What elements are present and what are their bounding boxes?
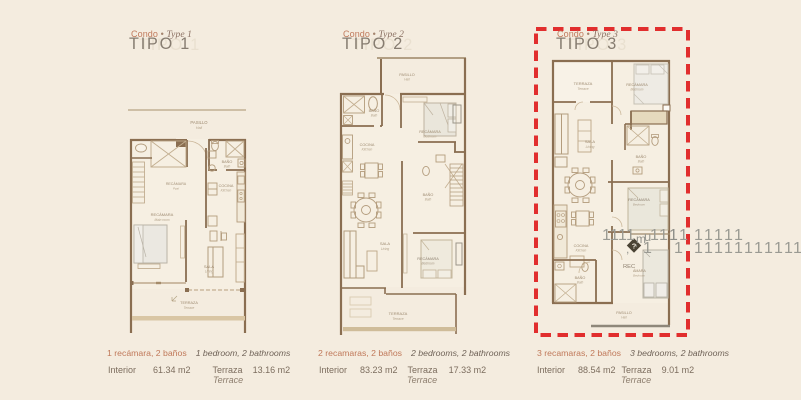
svg-text:Terrace: Terrace — [184, 306, 195, 310]
svg-text:RECÁMARA: RECÁMARA — [419, 130, 441, 134]
svg-text:COCINA: COCINA — [360, 143, 375, 147]
svg-text:BAÑO: BAÑO — [575, 275, 586, 280]
svg-text:PASILLO: PASILLO — [616, 311, 632, 315]
svg-text:TERRAZA: TERRAZA — [574, 81, 593, 86]
svg-text:Bedroom: Bedroom — [424, 135, 437, 139]
svg-text:COCINA: COCINA — [574, 244, 589, 248]
svg-text:Ppal: Ppal — [173, 187, 179, 191]
svg-text:BAÑO: BAÑO — [369, 108, 380, 113]
svg-text:SALA: SALA — [380, 241, 391, 246]
svg-text:Bedroom: Bedroom — [631, 88, 644, 92]
svg-text:BAÑO: BAÑO — [222, 159, 233, 164]
svg-text:Hall: Hall — [196, 126, 202, 130]
svg-text:RECÁMARA: RECÁMARA — [626, 83, 648, 87]
svg-text:Terrace: Terrace — [392, 317, 403, 321]
svg-text:BAÑO: BAÑO — [636, 154, 647, 159]
svg-text:Kitchen: Kitchen — [576, 249, 587, 253]
svg-text:Main room: Main room — [154, 218, 169, 222]
svg-text:1: 1 — [784, 240, 793, 257]
svg-text:Bath: Bath — [638, 160, 645, 164]
svg-text:TERRAZA: TERRAZA — [180, 301, 198, 305]
svg-text:PASILLO: PASILLO — [190, 120, 208, 125]
svg-text:': ' — [635, 242, 637, 256]
svg-text:Bath: Bath — [224, 165, 231, 169]
svg-text:1: 1 — [774, 240, 783, 257]
svg-text:,: , — [626, 242, 629, 256]
svg-text:RECÁMARA: RECÁMARA — [151, 212, 174, 217]
svg-text:SALA: SALA — [585, 139, 596, 144]
svg-text:Bath: Bath — [371, 114, 378, 118]
svg-text:Bedroom: Bedroom — [633, 203, 646, 207]
svg-text:Kitchen: Kitchen — [362, 148, 373, 152]
svg-text:Bedroom: Bedroom — [422, 262, 435, 266]
svg-text:Living: Living — [586, 145, 595, 149]
svg-text:Hall: Hall — [621, 316, 627, 320]
svg-text:1: 1 — [704, 240, 713, 257]
svg-text:1: 1 — [764, 240, 773, 257]
svg-text:1: 1 — [734, 240, 743, 257]
svg-text:Bedroom: Bedroom — [633, 274, 646, 278]
svg-text:1: 1 — [694, 240, 703, 257]
svg-text:RECÁMARA: RECÁMARA — [166, 182, 187, 186]
svg-text:TERRAZA: TERRAZA — [389, 311, 408, 316]
svg-text:1: 1 — [643, 240, 652, 257]
svg-text:ÁMARA: ÁMARA — [633, 269, 646, 273]
svg-text:SALA: SALA — [204, 264, 215, 269]
svg-text:1: 1 — [674, 240, 683, 257]
svg-text:Kitchen: Kitchen — [221, 189, 232, 193]
svg-text:1: 1 — [659, 227, 668, 244]
svg-text:Living: Living — [205, 270, 214, 274]
svg-text:Terrace: Terrace — [577, 87, 588, 91]
svg-text:1: 1 — [714, 240, 723, 257]
svg-text:COCINA: COCINA — [219, 184, 234, 188]
svg-text:1: 1 — [754, 240, 763, 257]
svg-text:Living: Living — [381, 247, 390, 251]
svg-text:BAÑO: BAÑO — [423, 192, 434, 197]
svg-text:RECÁMARA: RECÁMARA — [417, 257, 439, 261]
svg-text:1: 1 — [744, 240, 753, 257]
svg-text:Bath: Bath — [577, 281, 584, 285]
svg-text:RECÁMARA: RECÁMARA — [628, 198, 650, 202]
svg-text:1: 1 — [724, 240, 733, 257]
svg-text:PASILLO: PASILLO — [399, 73, 415, 77]
svg-text:Bath: Bath — [425, 198, 432, 202]
svg-text:1: 1 — [793, 240, 801, 257]
svg-text:Hall: Hall — [404, 78, 410, 82]
